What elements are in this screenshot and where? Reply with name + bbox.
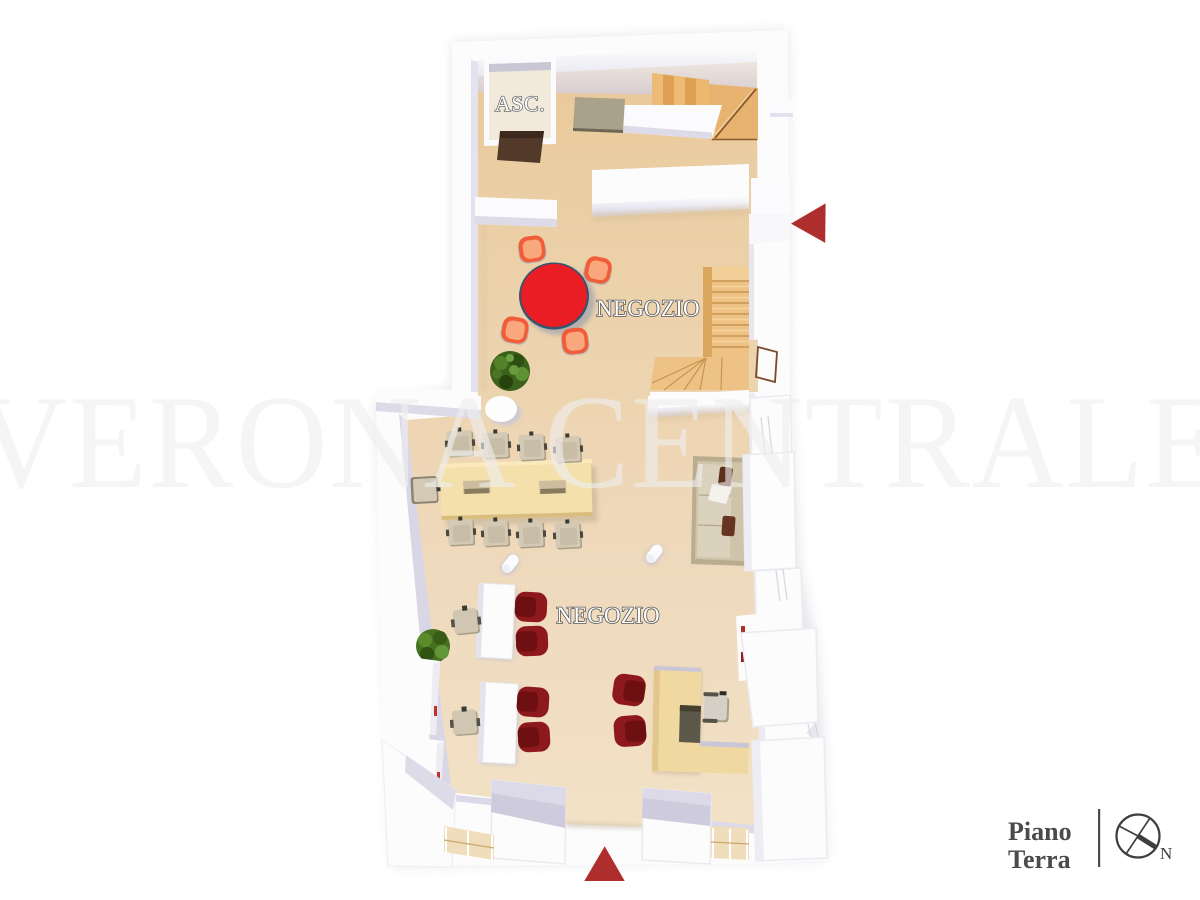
svg-text:NEGOZIO: NEGOZIO: [596, 296, 700, 321]
svg-text:ASC.: ASC.: [495, 91, 545, 116]
svg-text:Piano: Piano: [1008, 817, 1072, 846]
svg-text:VERONA CENTRALE: VERONA CENTRALE: [0, 368, 1200, 516]
svg-text:NEGOZIO: NEGOZIO: [556, 603, 660, 628]
svg-text:N: N: [1160, 844, 1172, 863]
svg-text:Terra: Terra: [1008, 845, 1071, 874]
